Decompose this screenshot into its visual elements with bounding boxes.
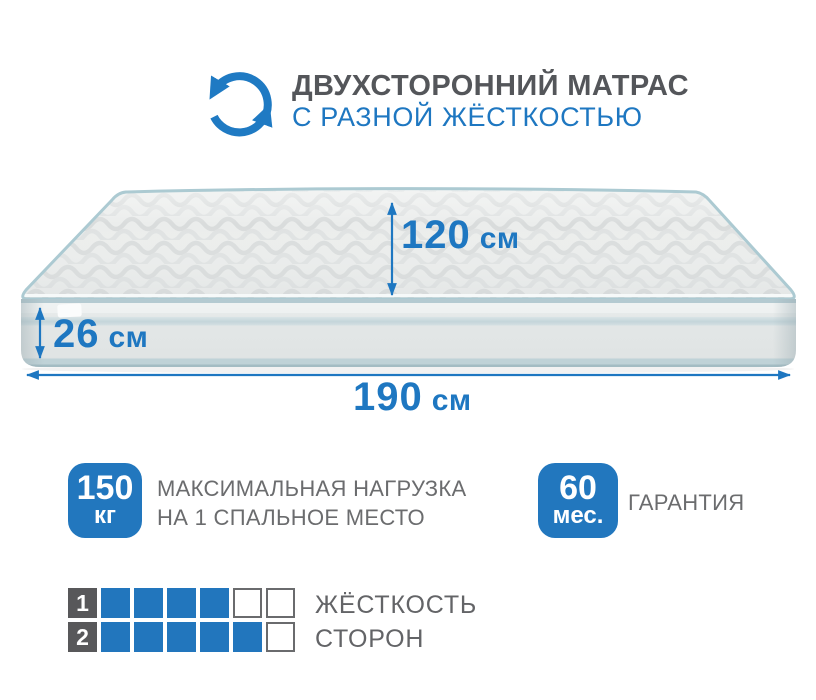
hardness-cell bbox=[266, 622, 295, 652]
warranty-label: ГАРАНТИЯ bbox=[628, 489, 744, 518]
hardness-cell bbox=[200, 588, 229, 618]
page-subtitle: С РАЗНОЙ ЖЁСТКОСТЬЮ bbox=[292, 102, 643, 133]
hardness-row: 1 bbox=[68, 588, 295, 618]
height-unit: см bbox=[109, 321, 149, 354]
mattress-infographic: ДВУХСТОРОННИЙ МАТРАС С РАЗНОЙ ЖЁСТКОСТЬЮ bbox=[0, 0, 816, 700]
hardness-cell bbox=[167, 622, 196, 652]
hardness-cell bbox=[101, 588, 130, 618]
warranty-value: 60 bbox=[538, 473, 618, 503]
hardness-label-line1: ЖЁСТКОСТЬ bbox=[315, 591, 477, 620]
max-load-badge: 150 кг bbox=[68, 463, 142, 538]
page-title: ДВУХСТОРОННИЙ МАТРАС bbox=[292, 70, 689, 103]
hardness-cell bbox=[134, 588, 163, 618]
hardness-cell bbox=[167, 588, 196, 618]
depth-dimension-label: 120см bbox=[401, 214, 520, 265]
hardness-cell bbox=[101, 622, 130, 652]
height-value: 26 bbox=[53, 312, 100, 356]
max-load-label-line2: НА 1 СПАЛЬНОЕ МЕСТО bbox=[157, 504, 466, 533]
hardness-cell bbox=[233, 588, 262, 618]
warranty-badge: 60 мес. bbox=[538, 463, 618, 538]
hardness-row: 2 bbox=[68, 622, 295, 652]
hardness-indicator: 12 bbox=[68, 588, 295, 656]
hardness-cell bbox=[266, 588, 295, 618]
height-dimension-label: 26см bbox=[53, 313, 148, 364]
hardness-label-line2: СТОРОН bbox=[315, 625, 424, 654]
max-load-label: МАКСИМАЛЬНАЯ НАГРУЗКА НА 1 СПАЛЬНОЕ МЕСТ… bbox=[157, 475, 466, 532]
hardness-cell bbox=[134, 622, 163, 652]
depth-value: 120 bbox=[401, 213, 471, 257]
max-load-unit: кг bbox=[68, 503, 142, 528]
max-load-value: 150 bbox=[68, 473, 142, 503]
length-unit: см bbox=[432, 384, 472, 417]
hardness-cell bbox=[200, 622, 229, 652]
rotate-arrows-icon bbox=[197, 61, 282, 146]
side-number: 1 bbox=[68, 588, 97, 618]
length-value: 190 bbox=[353, 375, 423, 419]
hardness-cell bbox=[233, 622, 262, 652]
max-load-label-line1: МАКСИМАЛЬНАЯ НАГРУЗКА bbox=[157, 475, 466, 504]
length-dimension-label: 190см bbox=[353, 376, 472, 427]
depth-unit: см bbox=[480, 222, 520, 255]
warranty-unit: мес. bbox=[538, 503, 618, 528]
side-number: 2 bbox=[68, 622, 97, 652]
